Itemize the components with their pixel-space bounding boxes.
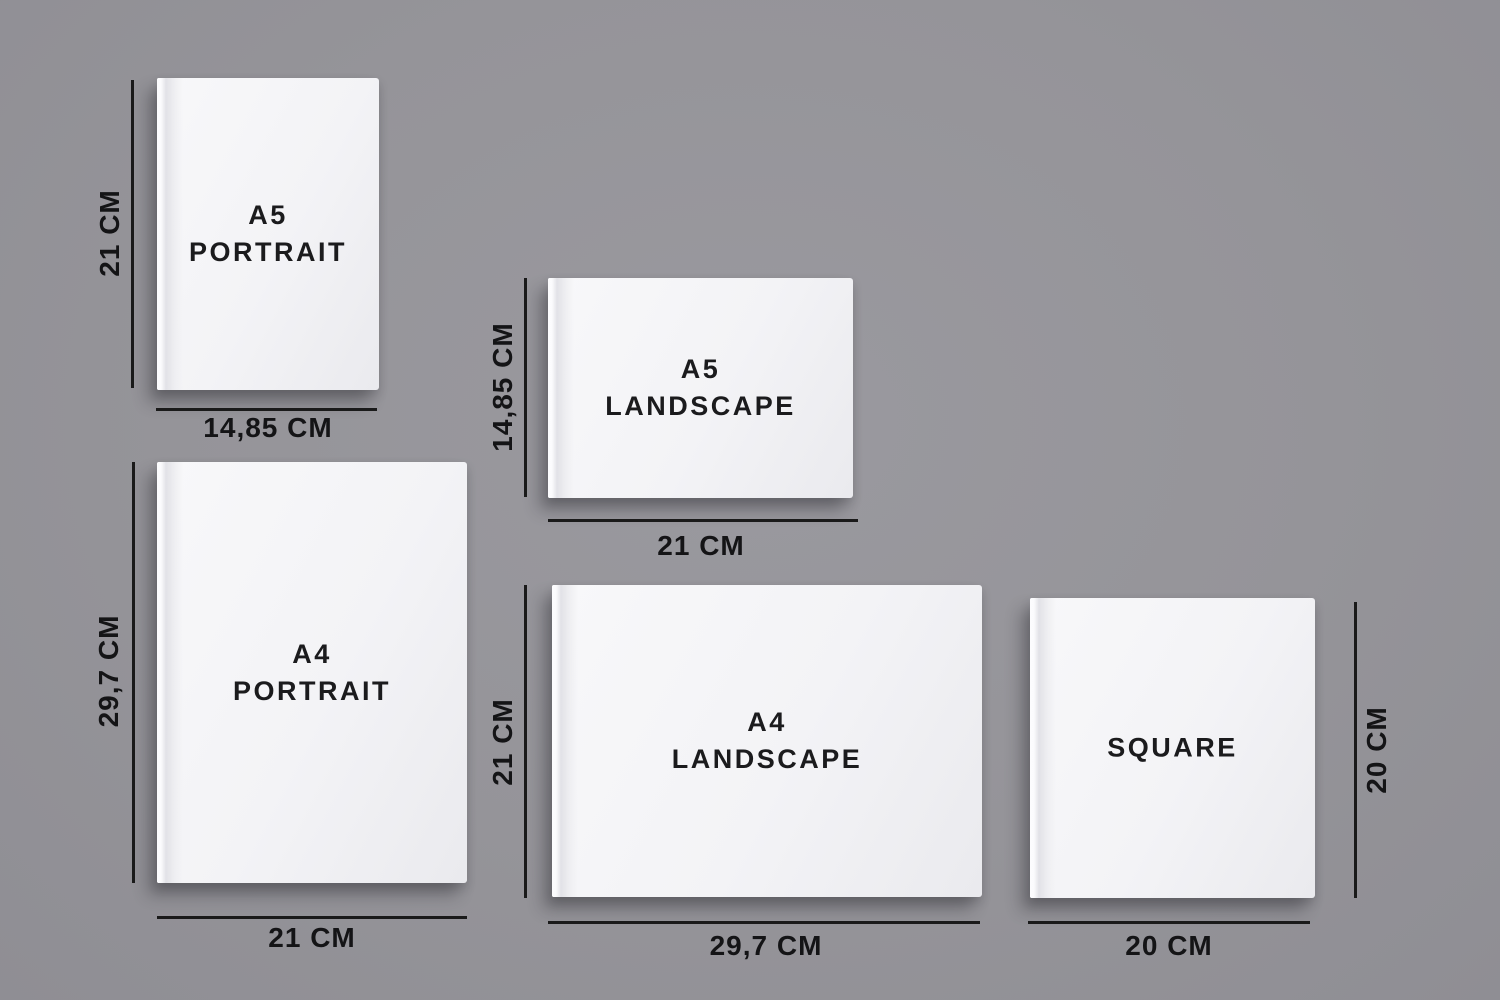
book-a4-portrait: A4 PORTRAIT (157, 462, 467, 883)
height-dimension-label: 20 CM (1361, 706, 1393, 793)
book-a4-landscape: A4 LANDSCAPE (552, 585, 982, 897)
width-dimension-line (156, 408, 377, 411)
book-title-line1: A5 (681, 351, 721, 388)
width-dimension-line (548, 519, 858, 522)
width-dimension-line (548, 921, 980, 924)
width-dimension-label: 21 CM (268, 922, 355, 954)
height-dimension-label: 21 CM (487, 698, 519, 785)
book-title-line2: PORTRAIT (189, 234, 347, 271)
height-dimension-line (524, 278, 527, 497)
book-title: A4 LANDSCAPE (552, 704, 982, 778)
width-dimension-line (1028, 921, 1310, 924)
width-dimension-label: 21 CM (657, 530, 744, 562)
book-title: SQUARE (1030, 730, 1315, 767)
height-dimension-line (131, 80, 134, 388)
height-dimension-line (132, 462, 135, 883)
book-title-line1: SQUARE (1107, 730, 1238, 767)
height-dimension-label: 29,7 CM (93, 615, 125, 728)
book-title-line1: A4 (292, 636, 332, 673)
height-dimension-label: 14,85 CM (487, 322, 519, 451)
book-title-line2: PORTRAIT (233, 673, 391, 710)
book-title-line2: LANDSCAPE (672, 741, 863, 778)
height-dimension-line (524, 585, 527, 898)
book-title-line1: A5 (248, 197, 288, 234)
book-a5-portrait: A5 PORTRAIT (157, 78, 379, 390)
height-dimension-label: 21 CM (94, 189, 126, 276)
book-title: A5 LANDSCAPE (548, 351, 853, 425)
width-dimension-label: 20 CM (1125, 930, 1212, 962)
book-square: SQUARE (1030, 598, 1315, 898)
book-title: A5 PORTRAIT (157, 197, 379, 271)
book-title-line2: LANDSCAPE (605, 388, 796, 425)
book-title-line1: A4 (747, 704, 787, 741)
width-dimension-label: 29,7 CM (710, 930, 823, 962)
width-dimension-label: 14,85 CM (203, 412, 332, 444)
height-dimension-line (1354, 602, 1357, 898)
width-dimension-line (157, 916, 467, 919)
book-size-comparison-diagram: A5 PORTRAIT 21 CM 14,85 CM A5 LANDSCAPE … (0, 0, 1500, 1000)
book-a5-landscape: A5 LANDSCAPE (548, 278, 853, 498)
book-title: A4 PORTRAIT (157, 636, 467, 710)
